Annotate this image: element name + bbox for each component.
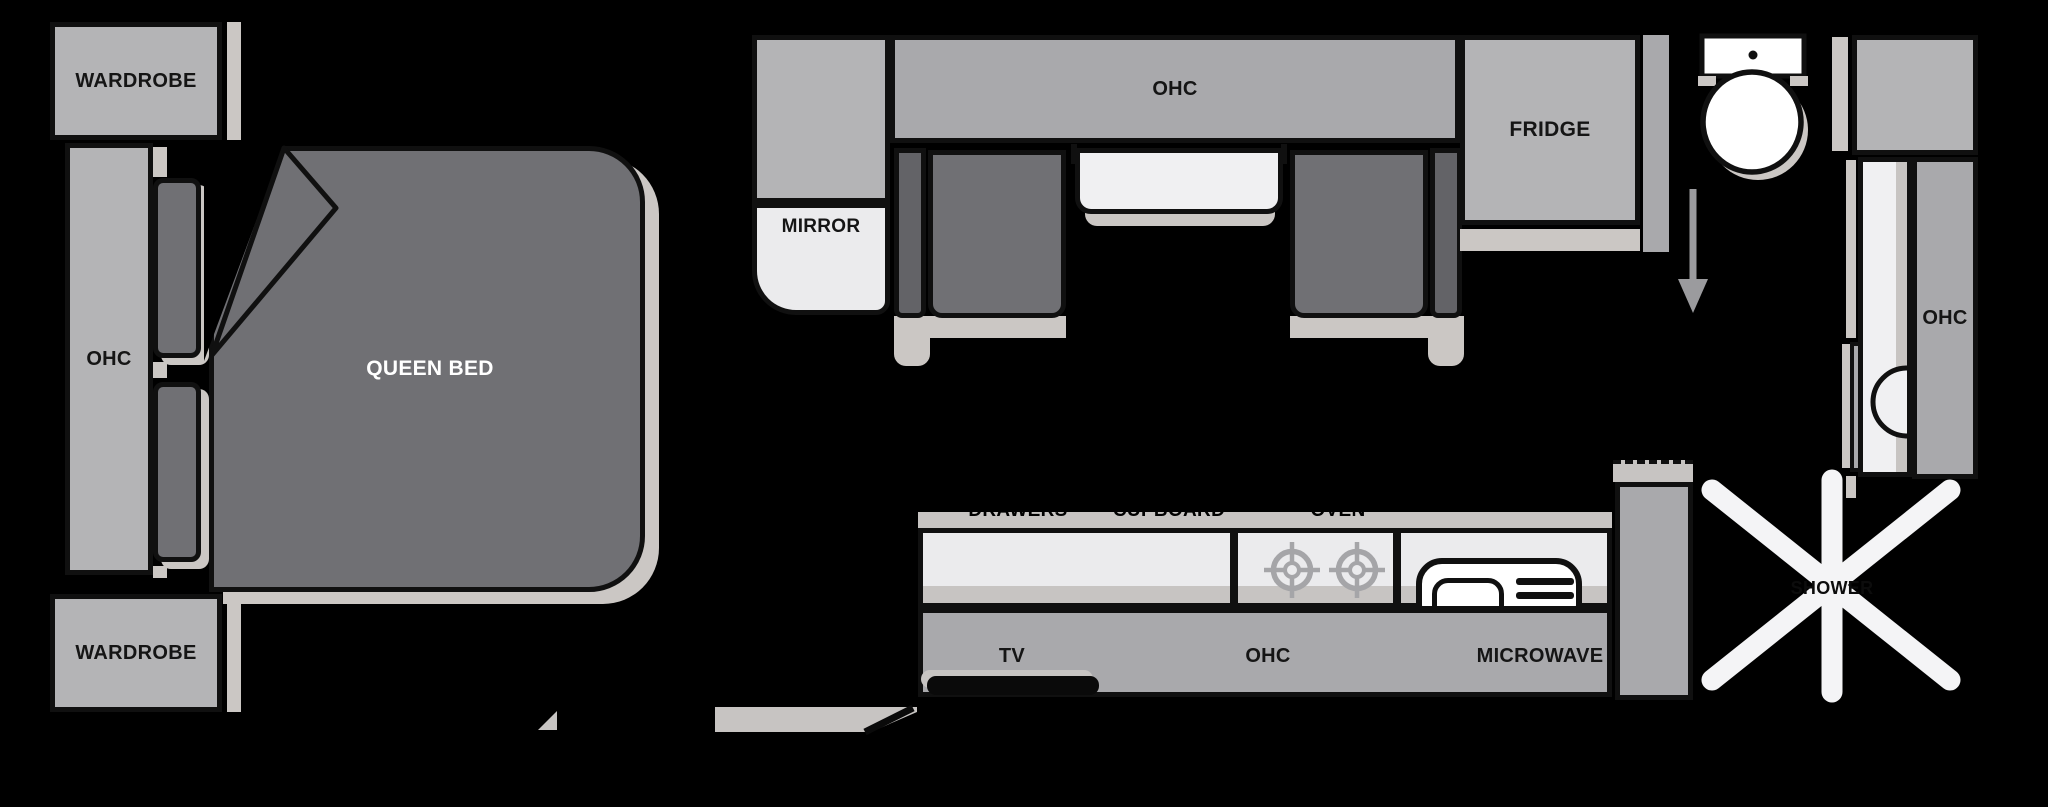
table-mount-tick xyxy=(1071,144,1077,164)
pantry xyxy=(1615,482,1693,700)
dinette-seat-foot xyxy=(1428,338,1464,366)
step-wedge-icon xyxy=(538,711,558,731)
dinette-ohc-label: OHC xyxy=(1152,78,1197,101)
tv-label: TV xyxy=(972,644,1052,668)
bedroom-wardrobe-top: WARDROBE xyxy=(50,22,222,140)
bedroom-wall-stub xyxy=(153,362,167,378)
bedroom-wardrobe-bottom: WARDROBE xyxy=(50,594,222,712)
dinette-seat-shadow xyxy=(894,316,1066,338)
bath-wall-strip xyxy=(1846,160,1856,338)
microwave-label: MICROWAVE xyxy=(1460,644,1620,668)
kitchen-sink-icon xyxy=(1416,558,1584,606)
wardrobe-bottom-shadow xyxy=(227,594,241,712)
dinette-seat-left-back xyxy=(894,148,926,318)
bath-wall-strip xyxy=(1842,344,1850,468)
nightstand xyxy=(153,382,201,562)
dinette-overhead-cabinet: OHC xyxy=(890,35,1460,143)
bedroom-ohc-cabinet: OHC xyxy=(65,143,153,575)
dinette-seat-left xyxy=(928,150,1066,318)
wardrobe-top-label: WARDROBE xyxy=(75,70,196,93)
nightstand xyxy=(153,178,201,358)
bedroom-wall-stub xyxy=(153,147,167,177)
dinette-table xyxy=(1075,148,1283,214)
shower-label: SHOWER xyxy=(1772,577,1892,599)
mirror-cabinet xyxy=(752,35,890,203)
dinette-seat-right-back xyxy=(1430,148,1462,318)
counter-label-cupboard: CUPBOARD xyxy=(1099,500,1239,521)
kitchen-ohc-label: OHC xyxy=(1228,644,1308,668)
table-mount-tick xyxy=(1281,144,1287,164)
vanity-sink-icon xyxy=(1867,364,1913,440)
fridge-shadow xyxy=(1460,229,1640,251)
floorplan-canvas: WARDROBE OHC QUEEN BED WARDROBE MIRROR O… xyxy=(0,0,2048,807)
wardrobe-top-shadow xyxy=(227,22,241,140)
dinette-seat-shadow xyxy=(1290,316,1464,338)
bedroom-wall-stub xyxy=(153,566,167,578)
cooktop-burners-icon xyxy=(1238,528,1396,608)
dinette-table-shadow xyxy=(1085,212,1275,226)
entry-step-icon xyxy=(715,706,921,734)
counter-divider xyxy=(1230,528,1238,608)
bath-cabinet-shadow xyxy=(1832,37,1848,151)
dinette-seat-foot xyxy=(894,338,930,366)
bath-ohc-label: OHC xyxy=(1922,307,1967,330)
toilet-icon xyxy=(1690,28,1825,193)
fridge: FRIDGE xyxy=(1460,35,1640,225)
entry-arrow-icon xyxy=(1673,185,1713,317)
counter-label-drawers: DRAWERS xyxy=(948,500,1088,521)
fridge-side-wall xyxy=(1643,35,1669,252)
bedroom-ohc-label: OHC xyxy=(86,348,131,371)
wardrobe-bottom-label: WARDROBE xyxy=(75,642,196,665)
fridge-label: FRIDGE xyxy=(1509,118,1590,142)
tv-icon xyxy=(927,676,1099,695)
bed-fold-icon xyxy=(200,140,350,365)
pantry-cap xyxy=(1613,460,1693,482)
bath-cabinet xyxy=(1852,35,1978,155)
mirror: MIRROR xyxy=(752,203,890,315)
bath-ohc-cabinet: OHC xyxy=(1912,157,1978,479)
queen-bed-label: QUEEN BED xyxy=(320,356,540,382)
counter-label-oven: OVEN xyxy=(1268,500,1408,521)
mirror-label: MIRROR xyxy=(782,216,861,238)
dinette-seat-right xyxy=(1290,150,1428,318)
